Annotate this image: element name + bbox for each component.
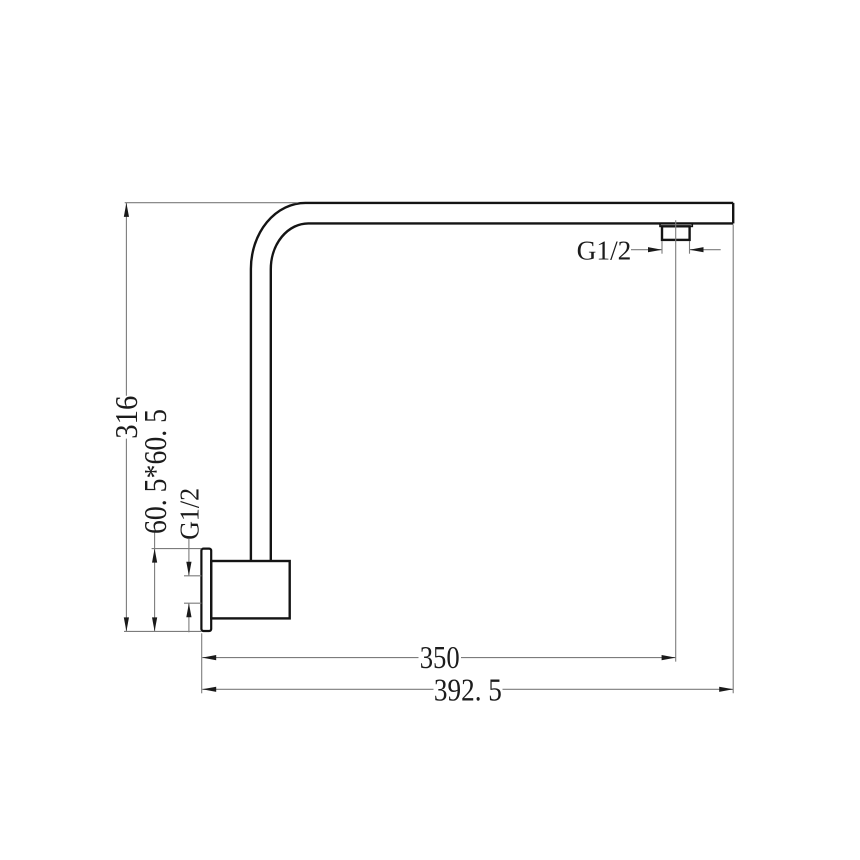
svg-text:350: 350 bbox=[420, 640, 460, 675]
svg-text:G1/2: G1/2 bbox=[175, 488, 205, 540]
svg-text:392. 5: 392. 5 bbox=[434, 672, 502, 707]
svg-text:60. 5*60. 5: 60. 5*60. 5 bbox=[138, 409, 173, 534]
svg-text:G1/2: G1/2 bbox=[577, 236, 632, 266]
